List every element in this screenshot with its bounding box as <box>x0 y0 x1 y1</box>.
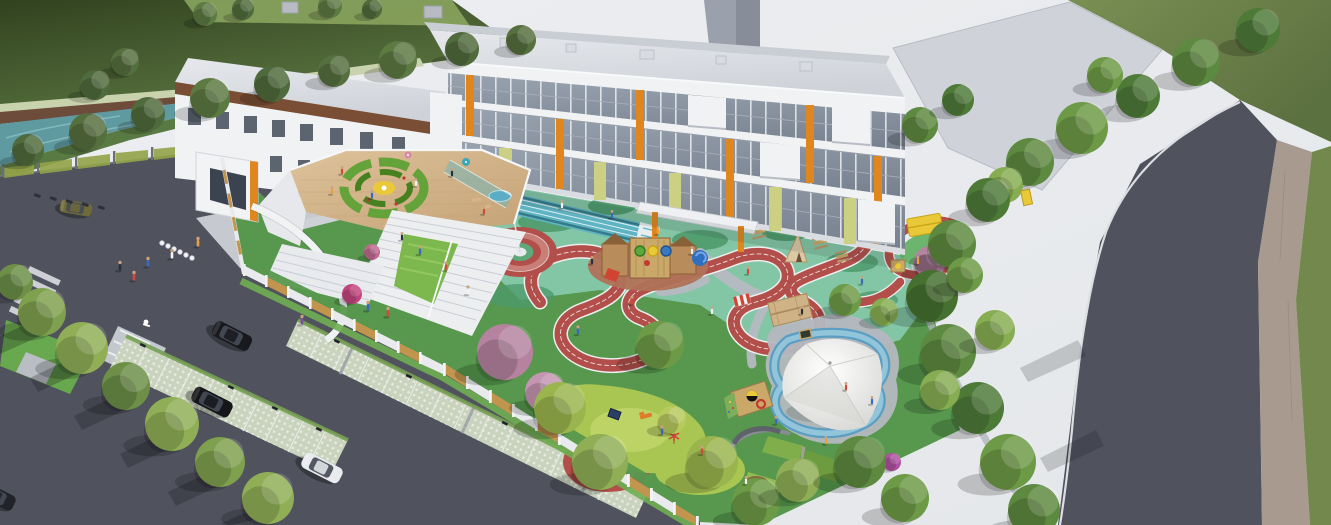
chalkboard <box>799 329 811 339</box>
campus-render-stage <box>0 0 1331 525</box>
campus-aerial-render <box>0 0 1331 525</box>
background-roof <box>282 2 298 13</box>
sand-water-play <box>766 314 899 444</box>
background-roof <box>424 6 442 18</box>
